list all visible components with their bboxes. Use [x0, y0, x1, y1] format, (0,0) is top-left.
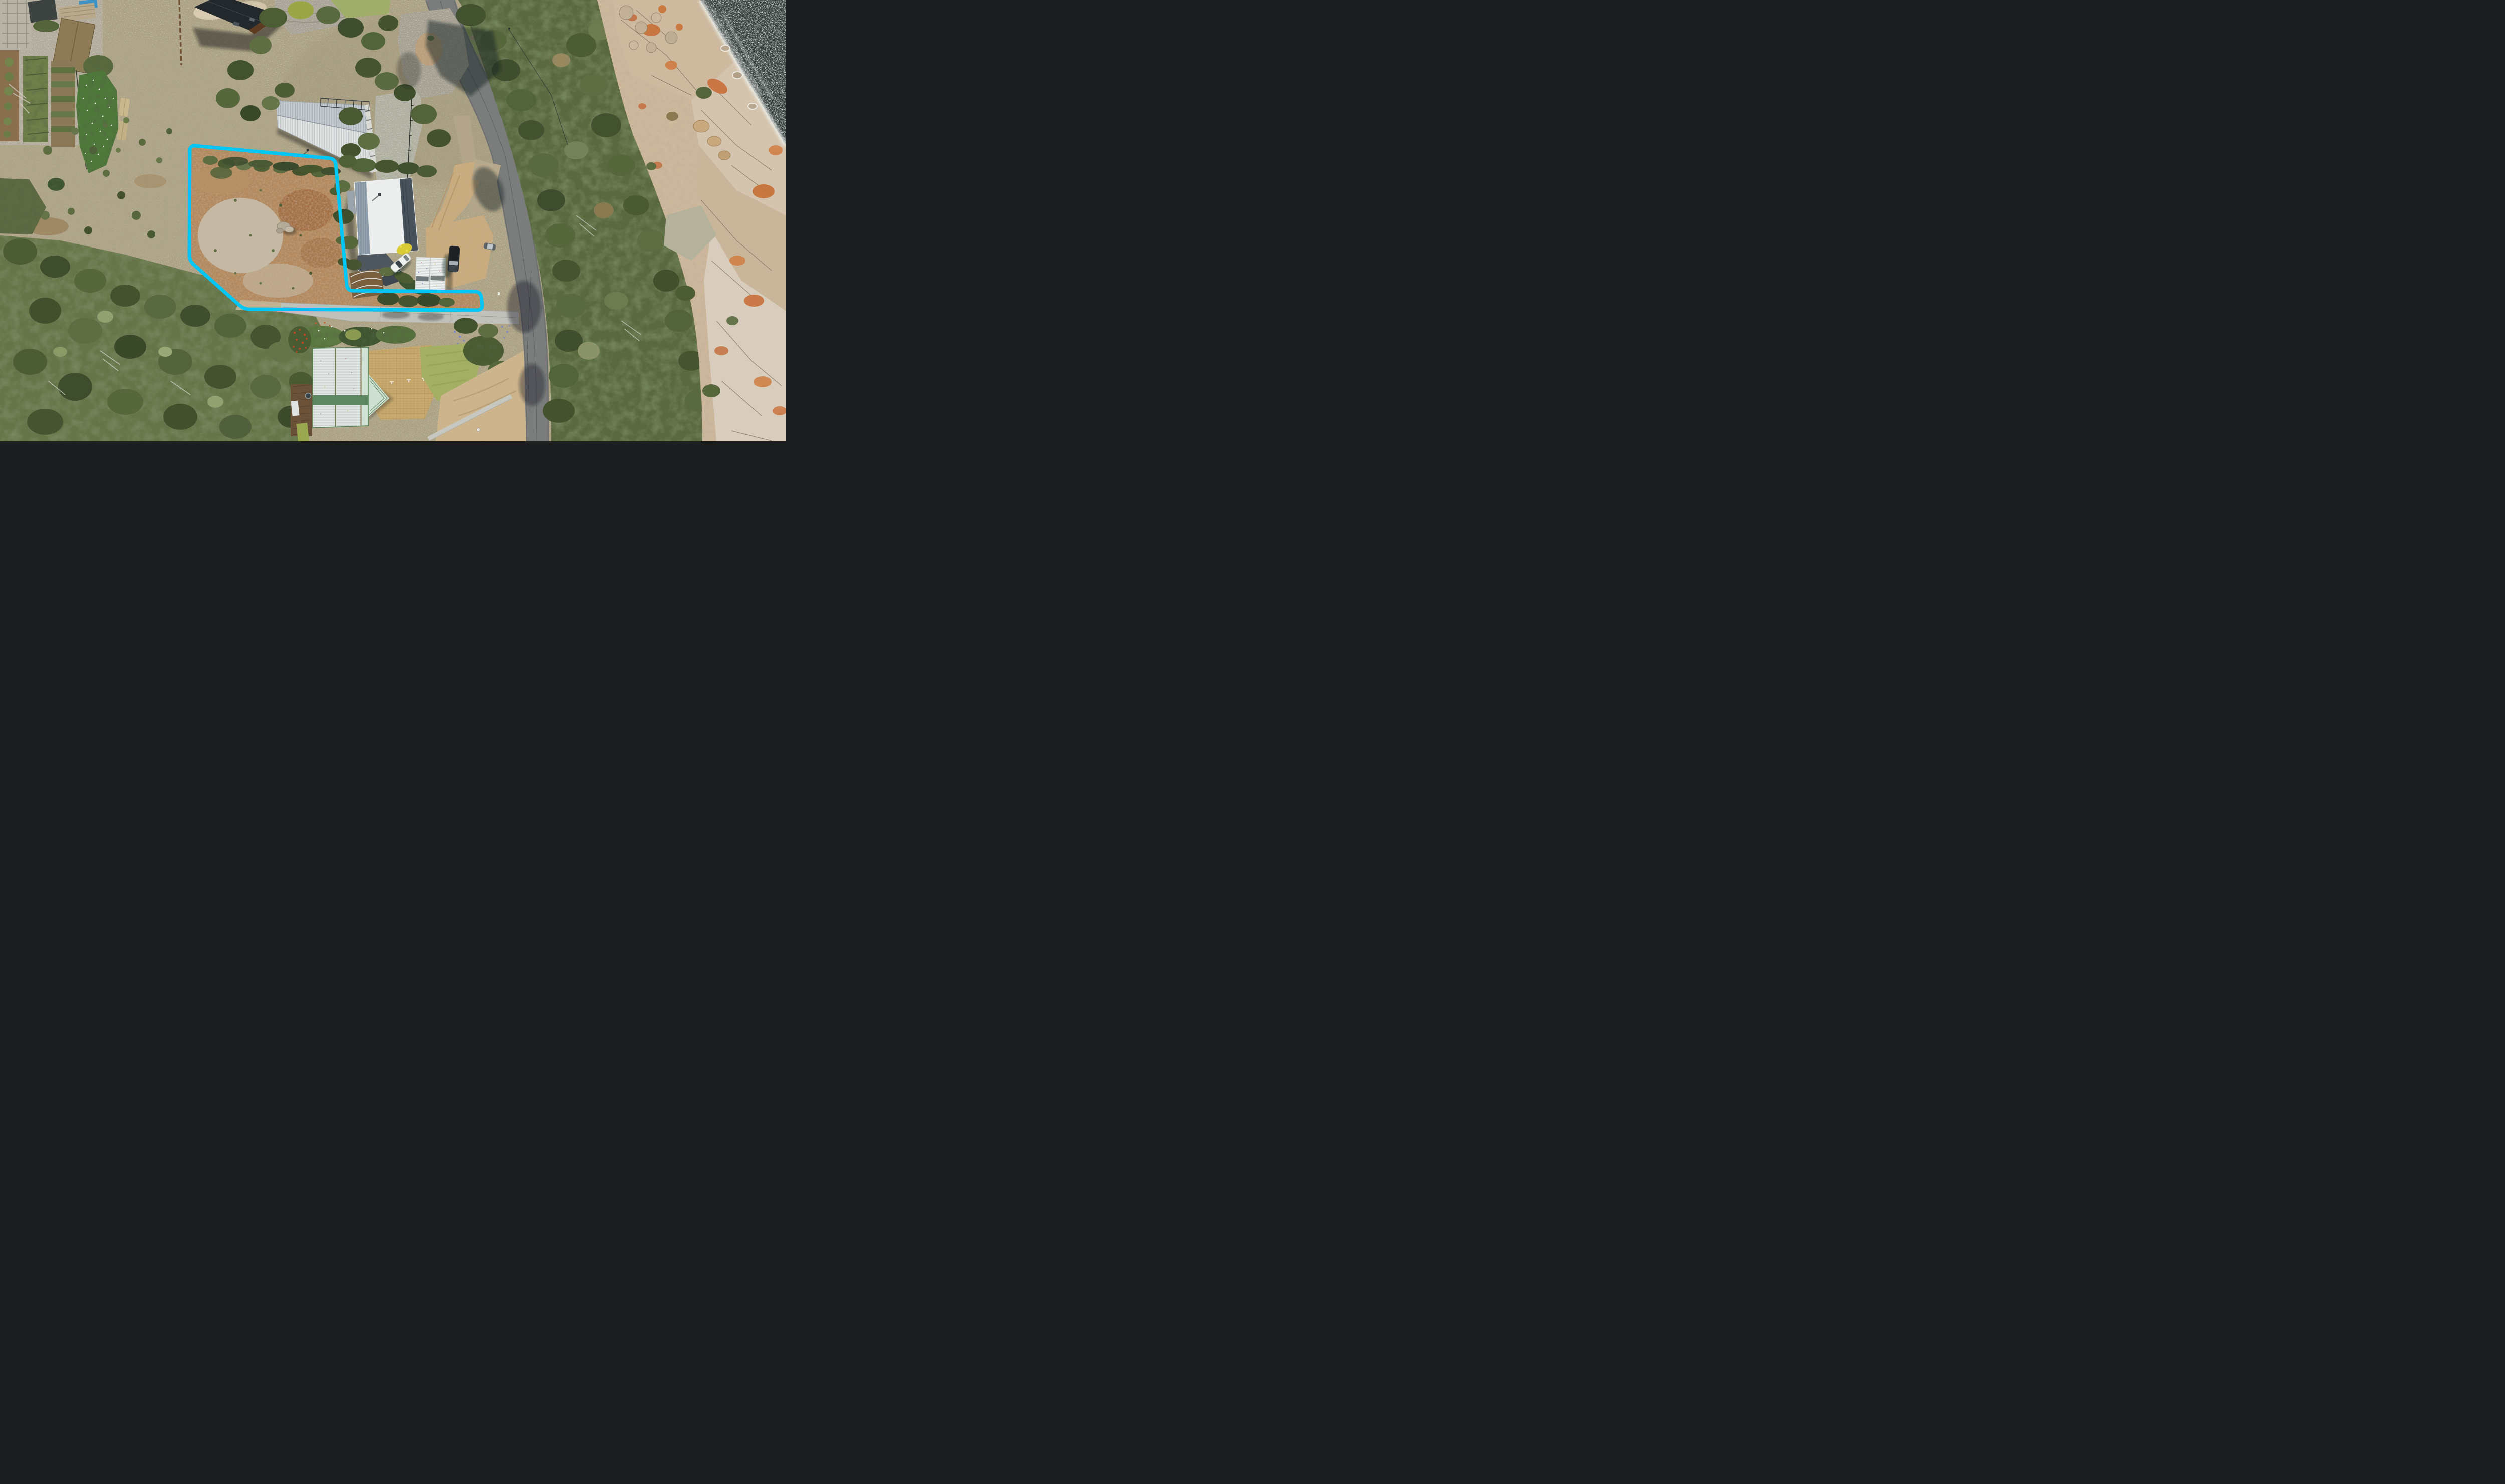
roof-vent — [307, 149, 309, 152]
sea-rock — [721, 45, 730, 51]
cottage-deck-strip — [362, 347, 368, 426]
cottage-west-deck — [291, 384, 312, 441]
garden-bed-row — [51, 61, 75, 147]
suv-roof — [449, 246, 459, 260]
sea-rock — [748, 103, 757, 109]
verge-tree — [377, 292, 399, 305]
chimney — [378, 193, 381, 196]
sea-rock — [732, 72, 742, 79]
round-bush — [48, 178, 65, 191]
suv-windshield — [449, 261, 458, 265]
verge-tree — [417, 294, 441, 307]
aerial-photo — [0, 0, 786, 441]
utility-cover — [477, 428, 480, 432]
yellow-green-bush — [345, 329, 361, 340]
power-pole — [508, 28, 510, 30]
garden-bush — [33, 20, 59, 32]
hot-tub — [306, 393, 311, 399]
garden-bed-row — [23, 56, 48, 142]
hoop-vege-garden — [349, 269, 385, 299]
shed-window-band — [431, 276, 445, 281]
tree-shadow-on-road — [507, 281, 541, 333]
shed-window-band — [416, 276, 428, 281]
yellow-hedge — [296, 423, 309, 441]
dark-outbuilding — [28, 0, 57, 23]
verge-tree — [439, 298, 455, 307]
cottage-green-band — [313, 395, 368, 405]
aerial-photo-stage — [0, 0, 786, 441]
verge-tree-shadow — [418, 313, 444, 321]
tree-shadow-on-road — [519, 364, 545, 406]
loop-shadow — [397, 52, 421, 88]
verge-tree-shadow — [382, 311, 410, 319]
white-roof — [366, 179, 405, 254]
verge-tree — [398, 295, 418, 307]
silver-dry-patch — [198, 198, 283, 273]
suv-hood — [448, 265, 458, 272]
